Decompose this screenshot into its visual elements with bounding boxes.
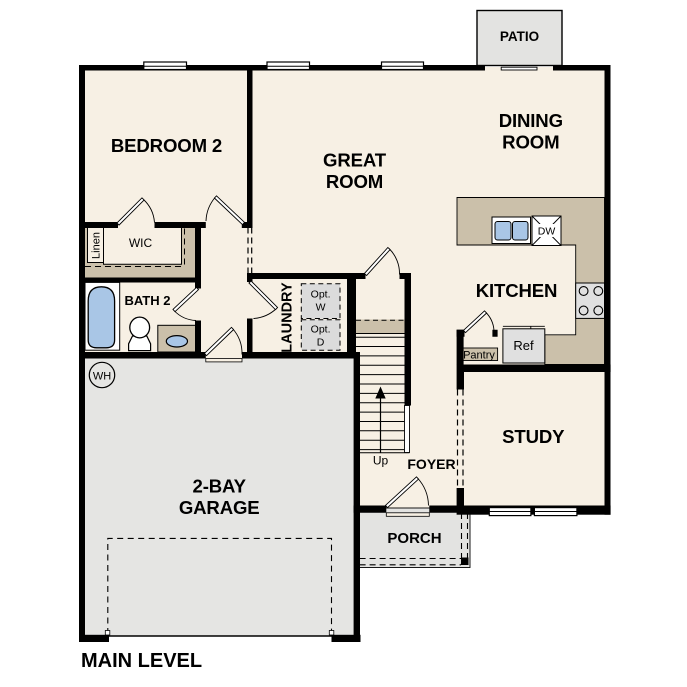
svg-text:BEDROOM 2: BEDROOM 2 (111, 135, 222, 156)
svg-text:BATH 2: BATH 2 (125, 293, 171, 308)
svg-text:Opt.: Opt. (311, 289, 331, 301)
svg-text:Linen: Linen (91, 232, 103, 259)
svg-text:DW: DW (538, 226, 556, 238)
svg-text:DINING: DINING (499, 110, 563, 131)
svg-text:GARAGE: GARAGE (179, 497, 260, 518)
svg-text:STUDY: STUDY (502, 426, 565, 447)
svg-text:W: W (316, 302, 326, 314)
svg-text:LAUNDRY: LAUNDRY (280, 282, 296, 353)
svg-text:KITCHEN: KITCHEN (476, 280, 558, 301)
svg-text:ROOM: ROOM (502, 132, 559, 153)
svg-text:GREAT: GREAT (323, 150, 387, 171)
svg-text:WH: WH (93, 371, 111, 383)
svg-text:2-BAY: 2-BAY (193, 476, 247, 497)
svg-text:FOYER: FOYER (407, 456, 455, 472)
svg-text:ROOM: ROOM (326, 171, 383, 192)
svg-text:D: D (317, 337, 325, 349)
svg-text:Ref: Ref (513, 338, 534, 353)
svg-text:Opt.: Opt. (311, 324, 331, 336)
svg-text:Pantry: Pantry (463, 350, 495, 362)
svg-text:MAIN LEVEL: MAIN LEVEL (81, 650, 202, 672)
svg-text:WIC: WIC (129, 236, 153, 250)
svg-text:Up: Up (373, 454, 389, 468)
svg-text:PORCH: PORCH (387, 530, 441, 547)
svg-text:PATIO: PATIO (500, 29, 539, 44)
